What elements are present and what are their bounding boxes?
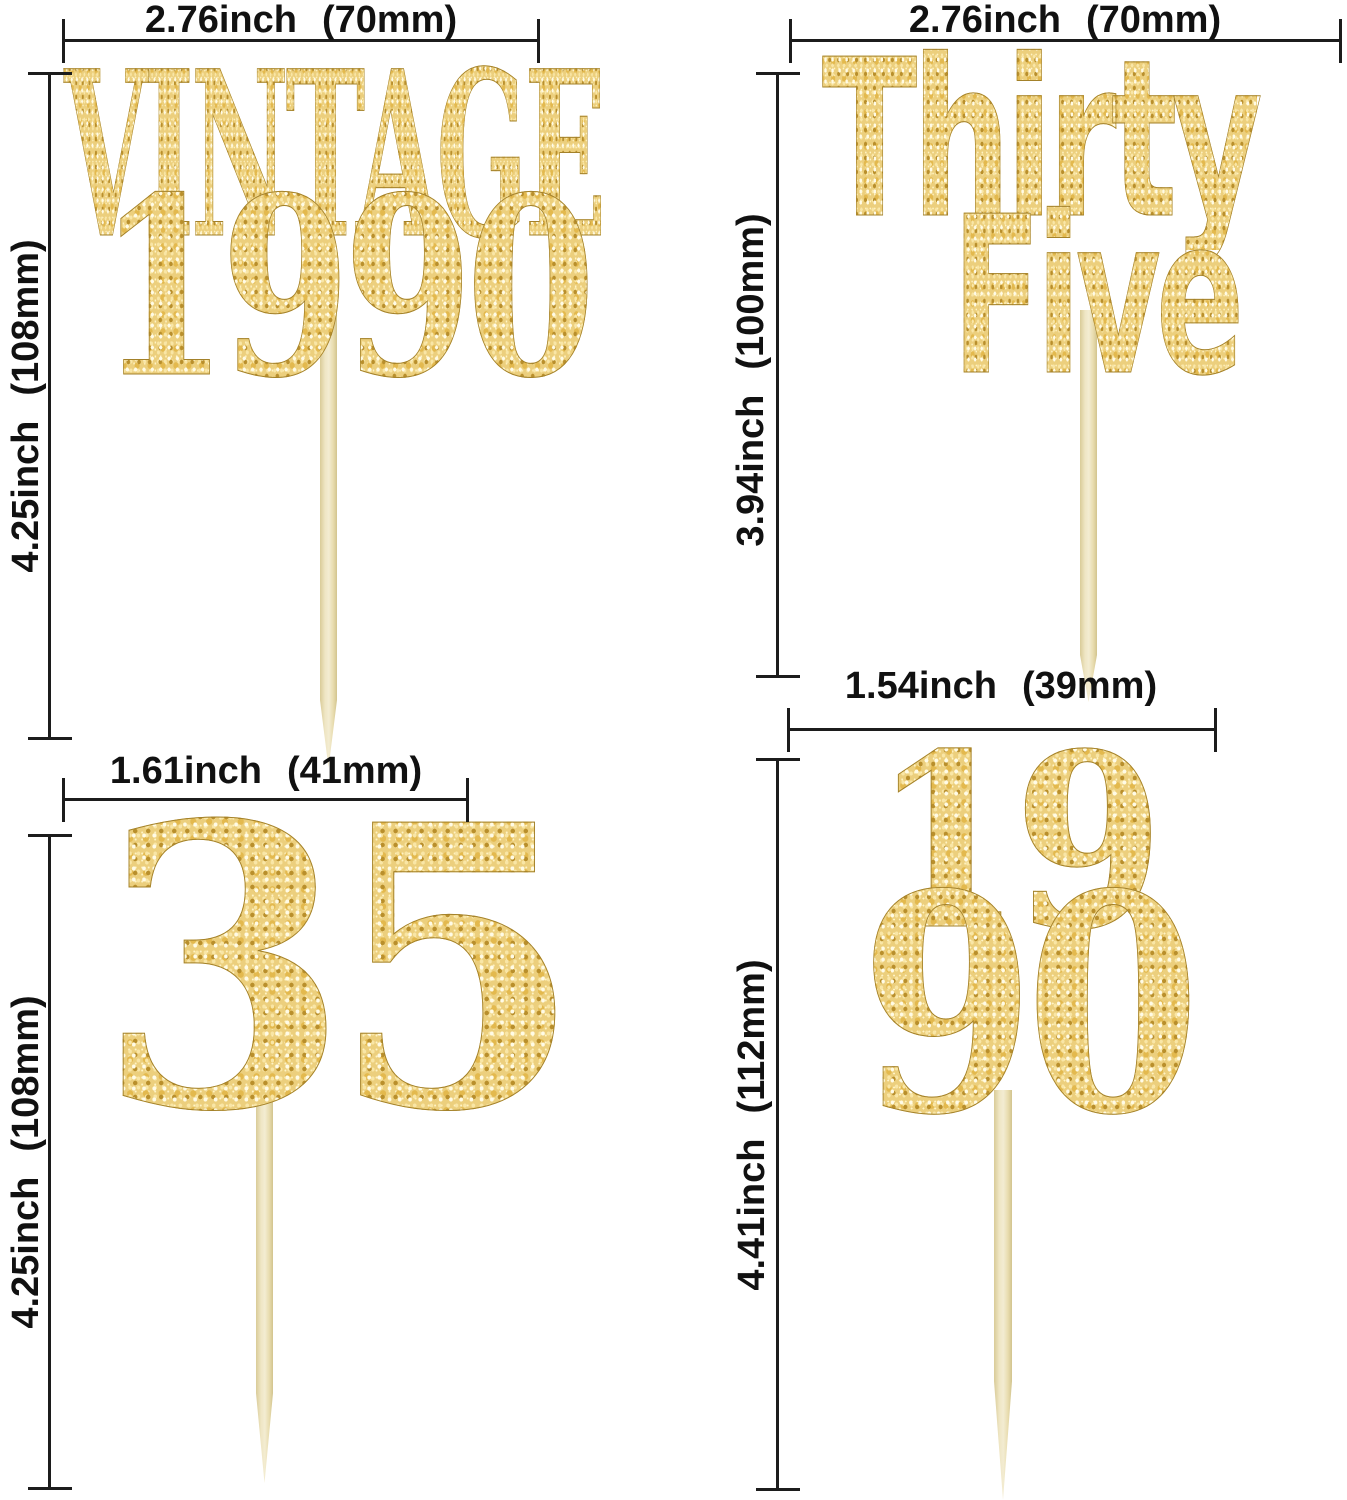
height-label-thirty-five: 3.94inch (100mm) <box>732 213 770 546</box>
height-dimension-line-19-90 <box>776 758 779 1491</box>
height-dimension-line-thirty-five <box>776 72 779 678</box>
width-dimension-line-19-90 <box>787 728 1217 731</box>
topper-text-five: Five <box>952 189 1239 407</box>
width-label-35: 1.61inch (41mm) <box>110 752 422 790</box>
height-label-35: 4.25inch (108mm) <box>7 995 45 1328</box>
topper-text-90: 90 <box>860 855 1191 1155</box>
topper-text-35: 35 <box>98 775 564 1163</box>
width-label-thirty-five: 2.76inch (70mm) <box>909 1 1221 39</box>
width-label-19-90: 1.54inch (39mm) <box>845 667 1157 705</box>
height-label-vintage-1990: 4.25inch (108mm) <box>7 239 45 572</box>
height-label-19-90: 4.41inch (112mm) <box>733 959 771 1290</box>
width-dimension-line-35 <box>62 798 469 801</box>
height-dimension-line-35 <box>48 834 51 1490</box>
product-dimension-image: 2.76inch (70mm) 4.25inch (108mm) VINTAGE… <box>0 0 1347 1500</box>
topper-text-1990: 1990 <box>98 166 588 412</box>
width-label-vintage-1990: 2.76inch (70mm) <box>145 1 457 39</box>
height-dimension-line-vintage-1990 <box>48 72 51 740</box>
